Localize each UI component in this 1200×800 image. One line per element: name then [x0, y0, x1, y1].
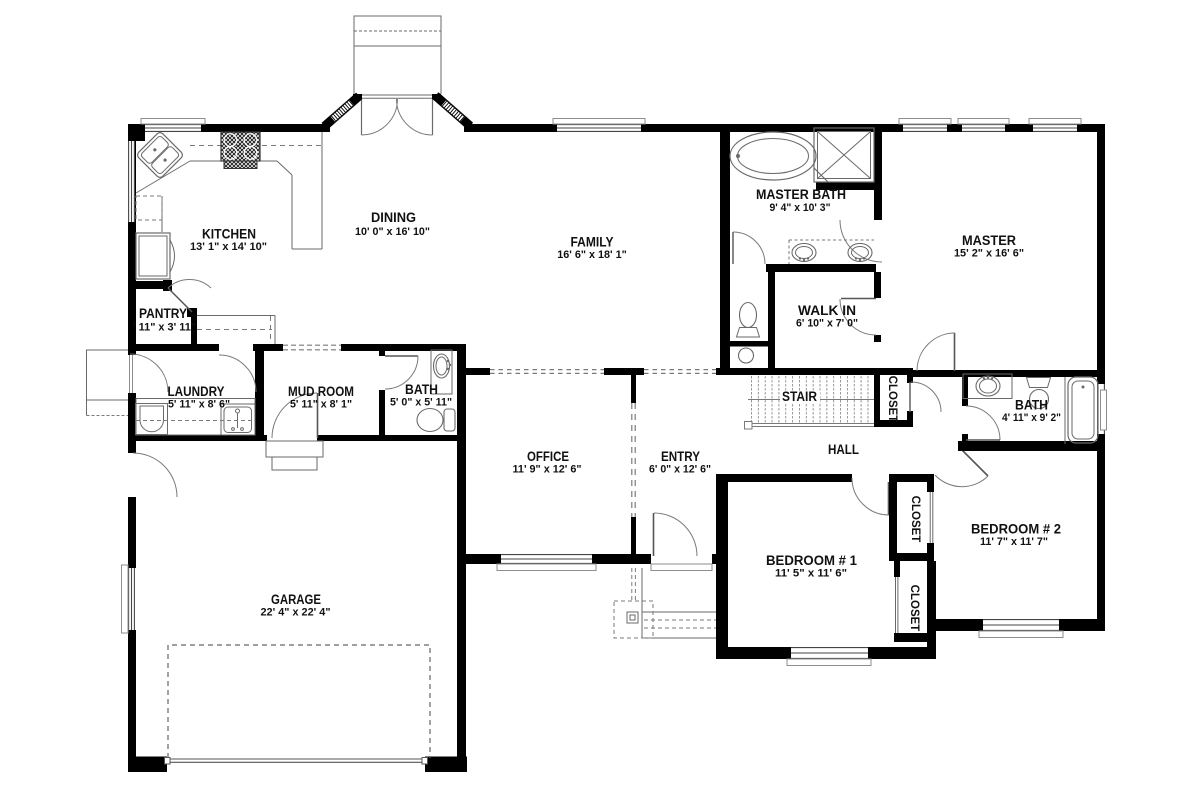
svg-text:ENTRY: ENTRY — [661, 449, 700, 464]
svg-text:CLOSET: CLOSET — [908, 585, 920, 632]
svg-text:10' 0" x 16' 10": 10' 0" x 16' 10" — [355, 226, 430, 238]
svg-text:16' 6" x 18' 1": 16' 6" x 18' 1" — [557, 249, 627, 261]
svg-text:DINING: DINING — [371, 210, 416, 225]
svg-text:OFFICE: OFFICE — [527, 449, 569, 464]
svg-text:MASTER: MASTER — [962, 233, 1016, 248]
svg-text:' 11" x 3' 11": ' 11" x 3' 11" — [133, 322, 196, 334]
svg-text:22' 4" x 22' 4": 22' 4" x 22' 4" — [261, 607, 331, 619]
svg-text:5' 0" x 5' 11": 5' 0" x 5' 11" — [390, 397, 452, 409]
svg-text:11' 7" x 11' 7": 11' 7" x 11' 7" — [980, 536, 1048, 548]
svg-text:13' 1" x 14' 10": 13' 1" x 14' 10" — [190, 241, 267, 253]
svg-text:STAIR: STAIR — [782, 389, 817, 404]
svg-text:BATH: BATH — [1015, 398, 1048, 413]
svg-text:WALK IN: WALK IN — [798, 303, 856, 318]
svg-text:FAMILY: FAMILY — [571, 235, 614, 250]
svg-text:GARAGE: GARAGE — [271, 592, 321, 607]
svg-text:CLOSET: CLOSET — [909, 496, 921, 543]
svg-text:MASTER BATH: MASTER BATH — [756, 187, 846, 202]
svg-text:CLOSET: CLOSET — [886, 376, 898, 423]
svg-text:BATH: BATH — [405, 382, 438, 397]
svg-text:BEDROOM # 1: BEDROOM # 1 — [766, 553, 857, 568]
svg-text:4' 11" x 9' 2": 4' 11" x 9' 2" — [1002, 412, 1061, 424]
svg-text:BEDROOM # 2: BEDROOM # 2 — [971, 522, 1061, 537]
svg-text:6' 0" x 12' 6": 6' 0" x 12' 6" — [649, 464, 711, 476]
svg-text:9' 4" x 10' 3": 9' 4" x 10' 3" — [770, 202, 831, 214]
svg-text:11' 9" x 12' 6": 11' 9" x 12' 6" — [513, 464, 582, 476]
svg-text:5' 11" x 8' 6": 5' 11" x 8' 6" — [168, 399, 230, 411]
svg-text:PANTRY: PANTRY — [139, 306, 187, 321]
svg-text:KITCHEN: KITCHEN — [202, 227, 256, 242]
svg-text:6' 10" x 7' 0": 6' 10" x 7' 0" — [796, 318, 858, 330]
svg-text:LAUNDRY: LAUNDRY — [168, 384, 225, 399]
svg-text:HALL: HALL — [828, 442, 859, 457]
svg-text:MUD ROOM: MUD ROOM — [288, 384, 354, 399]
svg-text:5' 11" x 8' 1": 5' 11" x 8' 1" — [290, 399, 352, 411]
svg-text:11' 5" x 11' 6": 11' 5" x 11' 6" — [775, 568, 847, 580]
svg-text:15' 2" x 16' 6": 15' 2" x 16' 6" — [954, 248, 1024, 260]
